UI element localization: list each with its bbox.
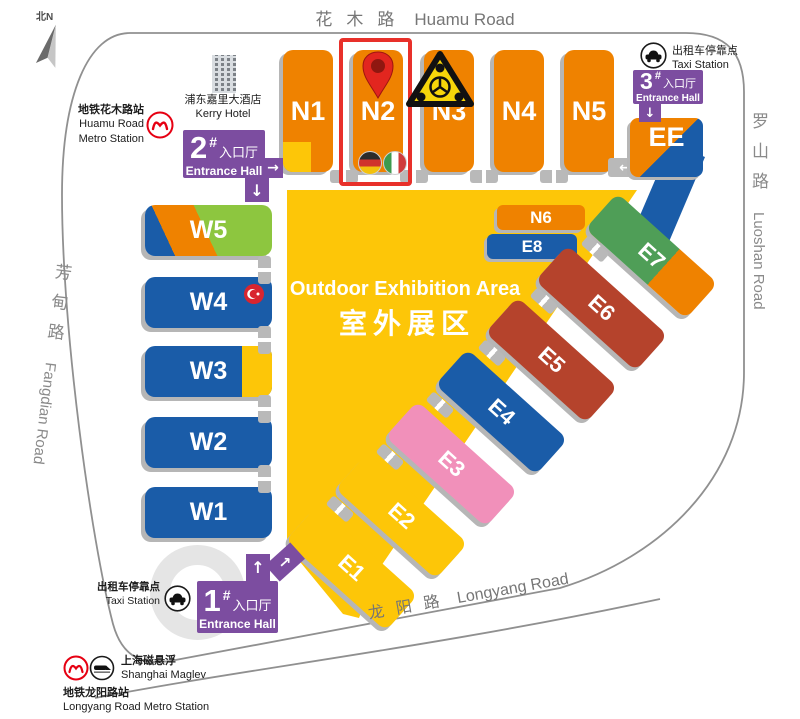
entrance-1-number: 1 <box>203 585 220 616</box>
maglev-en: Shanghai Maglev <box>121 668 206 682</box>
entrance-1-hash: # <box>223 588 231 602</box>
hall-e6-label: E6 <box>583 289 620 326</box>
compass-north-icon <box>30 18 70 74</box>
entrance-2-hash: # <box>209 135 217 149</box>
hall-n6-label: N6 <box>530 208 552 228</box>
hall-w5-label: W5 <box>190 216 228 245</box>
location-pin-icon <box>360 50 396 100</box>
taxi-ne-en: Taxi Station <box>672 58 738 72</box>
hall-w5: W5 <box>145 205 272 256</box>
down-left-arrow-icon: ↙ <box>638 182 652 202</box>
turkey-flag-icon <box>244 284 264 304</box>
hall-w1: W1 <box>145 487 272 538</box>
down-arrow-icon: ↓ <box>639 104 661 122</box>
road-luoshan-en: Luoshan Road <box>750 212 767 310</box>
taxi-icon <box>640 42 667 69</box>
entrance-1-number-row: 1 # 入口厅 <box>203 585 271 616</box>
longyang-metro-en: Longyang Road Metro Station <box>63 700 209 714</box>
germany-flag-icon <box>358 151 382 175</box>
kerry-hotel-zh: 浦东嘉里大酒店 <box>178 93 268 107</box>
entrance-hall-1: 1 # 入口厅 Entrance Hall <box>197 581 278 633</box>
entrance-3-en: Entrance Hall <box>636 94 700 104</box>
hall-n5-label: N5 <box>572 96 607 127</box>
road-huamu-en: Huamu Road <box>414 10 514 29</box>
taxi-icon <box>164 585 191 612</box>
hall-e4-label: E4 <box>483 393 520 430</box>
hall-n1-label: N1 <box>291 96 326 127</box>
entrance-hall-3: 3 # 入口厅 Entrance Hall <box>633 70 703 104</box>
maglev-train-icon <box>89 655 115 681</box>
hall-e8-label: E8 <box>522 237 543 257</box>
longyang-metro-label: 地铁龙阳路站 Longyang Road Metro Station <box>63 686 209 715</box>
outdoor-area-title-en: Outdoor Exhibition Area <box>289 278 521 301</box>
huamu-metro-label: 地铁花木路站 Huamu Road Metro Station <box>66 103 144 146</box>
hotel-building-icon <box>212 55 236 93</box>
hall-e3-label: E3 <box>433 445 470 482</box>
entrance-1-zh: 入口厅 <box>233 599 272 612</box>
hall-n5: N5 <box>564 50 614 172</box>
entrance-3-number: 3 <box>640 70 653 93</box>
connector-tab <box>258 395 271 423</box>
entrance-3-zh: 入口厅 <box>663 79 696 90</box>
hall-w2-label: W2 <box>190 428 228 457</box>
hall-ee-label: EE <box>648 122 684 153</box>
entrance-3-hash: # <box>655 71 661 82</box>
connector-tab <box>258 256 271 284</box>
hall-n1-yellow-section <box>283 142 311 172</box>
down-arrow-icon: ↓ <box>245 178 269 202</box>
road-label-luoshan: 罗山路Luoshan Road <box>746 112 771 442</box>
taxi-sw-zh: 出租车停靠点 <box>94 581 160 595</box>
entrance-hall-2: 2 # 入口厅 Entrance Hall <box>183 130 265 178</box>
road-huamu-zh: 花木路 <box>315 10 408 29</box>
hall-e7-label: E7 <box>633 237 670 274</box>
taxi-ne-zh: 出租车停靠点 <box>672 44 738 58</box>
road-luoshan-zh: 罗山路 <box>749 112 768 202</box>
entrance-2-number-row: 2 # 入口厅 <box>190 132 258 163</box>
entrance-3-number-row: 3 # 入口厅 <box>640 70 696 93</box>
connector-tab <box>470 170 498 183</box>
huamu-metro-zh: 地铁花木路站 <box>66 103 144 117</box>
hall-w4: W4 <box>145 277 272 328</box>
hall-e1-label: E1 <box>333 549 370 586</box>
italy-flag-icon <box>383 151 407 175</box>
huamu-metro-en2: Metro Station <box>66 132 144 146</box>
maglev-label: 上海磁悬浮 Shanghai Maglev <box>121 654 206 683</box>
connector-tab <box>258 465 271 493</box>
kerry-hotel-en: Kerry Hotel <box>178 107 268 121</box>
hall-n6: N6 <box>497 205 585 230</box>
huamu-metro-en1: Huamu Road <box>66 117 144 131</box>
entrance-2-zh: 入口厅 <box>219 146 258 159</box>
hall-e2-label: E2 <box>383 497 420 534</box>
hall-n4-label: N4 <box>502 96 537 127</box>
road-label-huamu: 花木路Huamu Road <box>285 5 545 30</box>
hall-e5-label: E5 <box>533 341 570 378</box>
taxi-station-sw-label: 出租车停靠点 Taxi Station <box>94 581 160 608</box>
entrance-2-number: 2 <box>190 132 207 163</box>
maglev-zh: 上海磁悬浮 <box>121 654 206 668</box>
longyang-metro-zh: 地铁龙阳路站 <box>63 686 209 700</box>
expo-map: 北N 花木路Huamu Road 罗山路Luoshan Road 芳甸路Fang… <box>0 0 800 719</box>
hall-ee: EE <box>630 118 703 177</box>
hall-w2: W2 <box>145 417 272 468</box>
taxi-station-ne-label: 出租车停靠点 Taxi Station <box>672 44 738 73</box>
connector-tab <box>258 326 271 354</box>
hall-n1: N1 <box>283 50 333 172</box>
taxi-sw-en: Taxi Station <box>94 595 160 609</box>
metro-logo-icon <box>146 111 174 139</box>
metro-logo-icon <box>63 655 89 681</box>
right-arrow-icon: → <box>263 158 283 178</box>
hall-w3: W3 <box>145 346 272 397</box>
entrance-2-en: Entrance Hall <box>186 165 263 177</box>
hazard-triangle-icon <box>403 48 477 110</box>
hall-w4-label: W4 <box>190 288 228 317</box>
hall-w1-label: W1 <box>190 498 228 527</box>
outdoor-area-title-zh: 室外展区 <box>307 302 507 342</box>
hall-n4: N4 <box>494 50 544 172</box>
kerry-hotel-label: 浦东嘉里大酒店 Kerry Hotel <box>178 93 268 122</box>
hall-w3-label: W3 <box>190 357 228 386</box>
entrance-1-en: Entrance Hall <box>199 618 276 630</box>
connector-tab <box>540 170 568 183</box>
